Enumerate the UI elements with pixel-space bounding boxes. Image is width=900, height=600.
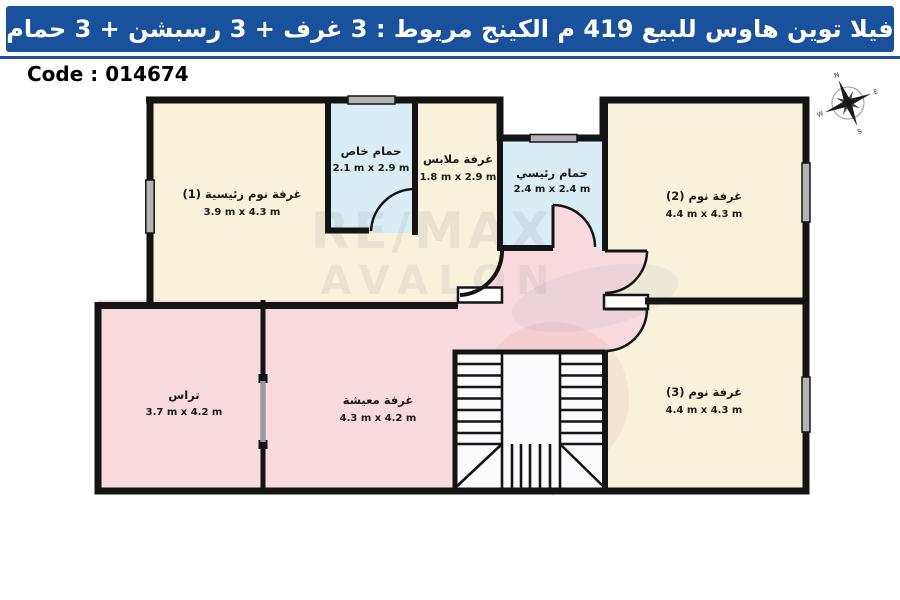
compass-e: E	[872, 87, 879, 96]
dims-terrace: 3.7 m x 4.2 m	[146, 407, 223, 418]
compass-icon: N E S W	[804, 59, 890, 147]
label-terrace: تراس	[168, 388, 199, 402]
label-main-bathroom: حمام رئيسي	[516, 166, 588, 180]
window-private-bathroom	[348, 96, 395, 104]
label-master-bedroom: غرفة نوم رئيسية (1)	[182, 187, 301, 202]
dims-living-room: 4.3 m x 4.2 m	[340, 413, 417, 424]
window-bedroom-3	[802, 377, 810, 432]
label-living-room: غرفة معيشة	[343, 393, 414, 407]
label-bedroom-2: غرفة نوم (2)	[666, 189, 742, 204]
dims-bedroom-2: 4.4 m x 4.3 m	[666, 209, 743, 220]
sliding-door-panel	[260, 381, 265, 442]
wall-opening-right	[604, 295, 648, 309]
staircase	[455, 352, 605, 490]
dims-master-bedroom: 3.9 m x 4.3 m	[204, 207, 281, 218]
label-dressing-room: غرفة ملابس	[423, 152, 493, 166]
window-master-bedroom	[146, 180, 154, 233]
dims-main-bathroom: 2.4 m x 2.4 m	[514, 184, 591, 195]
watermark-text-2: AVALON	[321, 258, 560, 304]
floor-plan: RE/MAX AVALON	[0, 0, 900, 600]
label-private-bathroom: حمام خاص	[341, 144, 402, 158]
compass-s: S	[856, 127, 863, 136]
dims-bedroom-3: 4.4 m x 4.3 m	[666, 405, 743, 416]
label-bedroom-3: غرفة نوم (3)	[666, 385, 742, 400]
window-bedroom-2	[802, 163, 810, 222]
dims-private-bathroom: 2.1 m x 2.9 m	[333, 163, 410, 174]
window-main-bathroom	[530, 135, 577, 143]
compass-n: N	[833, 71, 841, 80]
dims-dressing-room: 1.8 m x 2.9 m	[420, 172, 497, 183]
compass-w: W	[816, 109, 825, 119]
